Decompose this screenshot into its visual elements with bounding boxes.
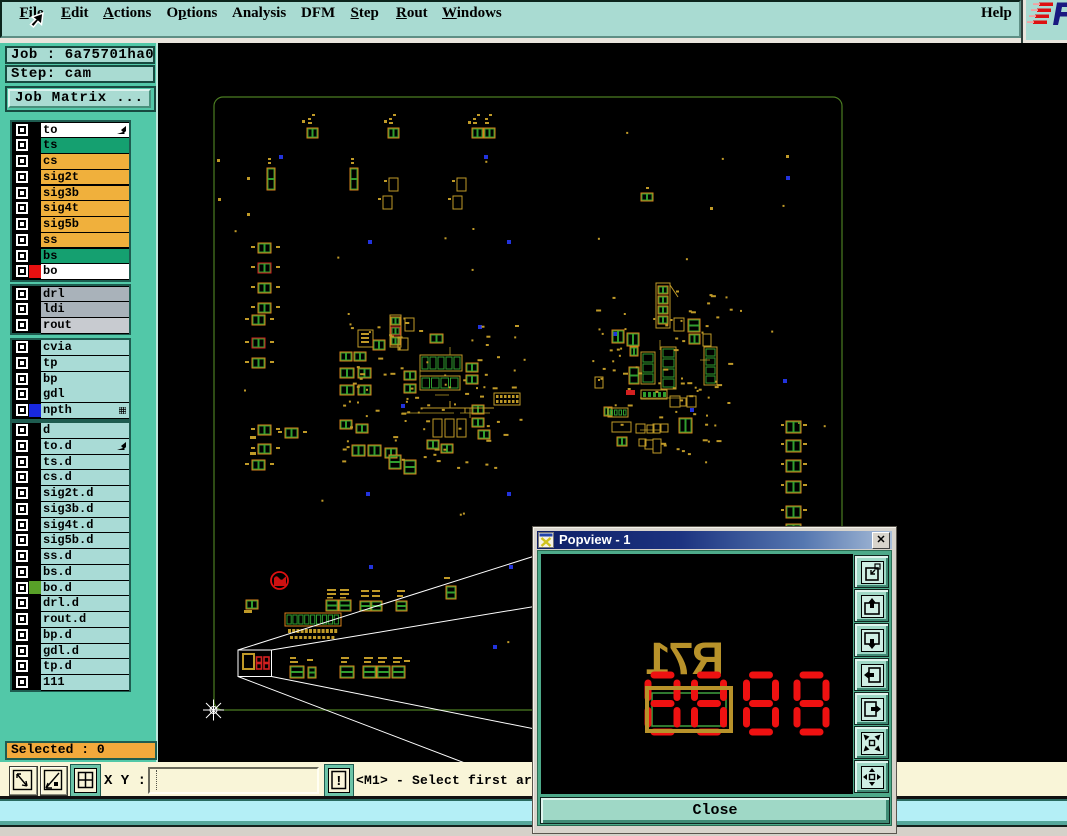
- svg-text:!: !: [335, 774, 343, 790]
